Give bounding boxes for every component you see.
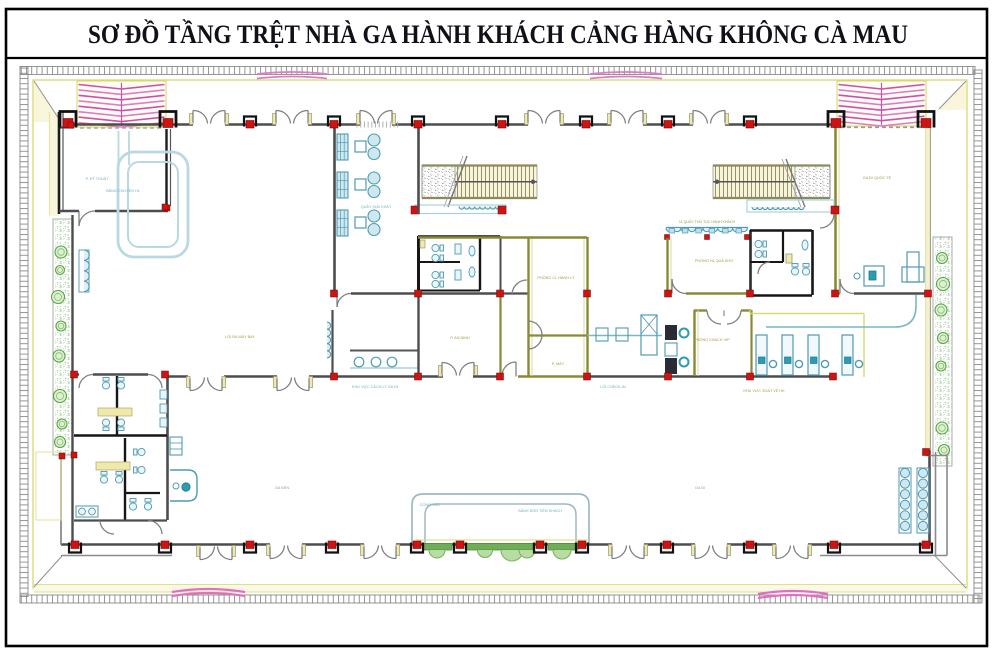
svg-text:QUẦY GIẢI KHÁT: QUẦY GIẢI KHÁT <box>361 204 392 209</box>
svg-text:P. AN NINH: P. AN NINH <box>450 336 470 340</box>
svg-text:SẢNH ĐÓN TIỄN KHÁCH: SẢNH ĐÓN TIỄN KHÁCH <box>518 508 562 513</box>
svg-text:GA ĐI QUỐC TẾ: GA ĐI QUỐC TẾ <box>863 175 892 180</box>
svg-text:P. MÁY: P. MÁY <box>552 362 565 366</box>
svg-text:PHÒNG KHÁCH VIP: PHÒNG KHÁCH VIP <box>694 337 730 342</box>
svg-text:P. KỸ THUẬT: P. KỸ THUẬT <box>86 176 110 181</box>
svg-text:GA ĐI: GA ĐI <box>695 486 705 490</box>
svg-text:GA ĐẾN: GA ĐẾN <box>275 485 290 490</box>
svg-text:LỐI CHECK-IN: LỐI CHECK-IN <box>600 384 626 389</box>
svg-text:PHÒNG HL QUÁ KHỔ: PHÒNG HL QUÁ KHỔ <box>695 258 733 263</box>
svg-text:CỔNG VÀO: CỔNG VÀO <box>420 502 441 507</box>
svg-text:BĂNG CHUYỀN HL: BĂNG CHUYỀN HL <box>106 188 140 193</box>
svg-text:KHU VỰC CÁCH LY GA ĐI: KHU VỰC CÁCH LY GA ĐI <box>352 385 398 389</box>
svg-text:SƠ ĐỒ TẦNG TRỆT NHÀ GA HÀNH KH: SƠ ĐỒ TẦNG TRỆT NHÀ GA HÀNH KHÁCH CẢNG H… <box>88 20 908 49</box>
svg-text:11 QUẦY THỦ TỤC HÀNH KHÁCH: 11 QUẦY THỦ TỤC HÀNH KHÁCH <box>679 219 736 224</box>
svg-text:PHÒNG CL HÀNH LÝ: PHÒNG CL HÀNH LÝ <box>537 275 575 280</box>
svg-text:KHU VỰC SOÁT VÉ HK: KHU VỰC SOÁT VÉ HK <box>743 388 785 393</box>
svg-text:LỐI RA MÁY BAY: LỐI RA MÁY BAY <box>225 334 255 339</box>
